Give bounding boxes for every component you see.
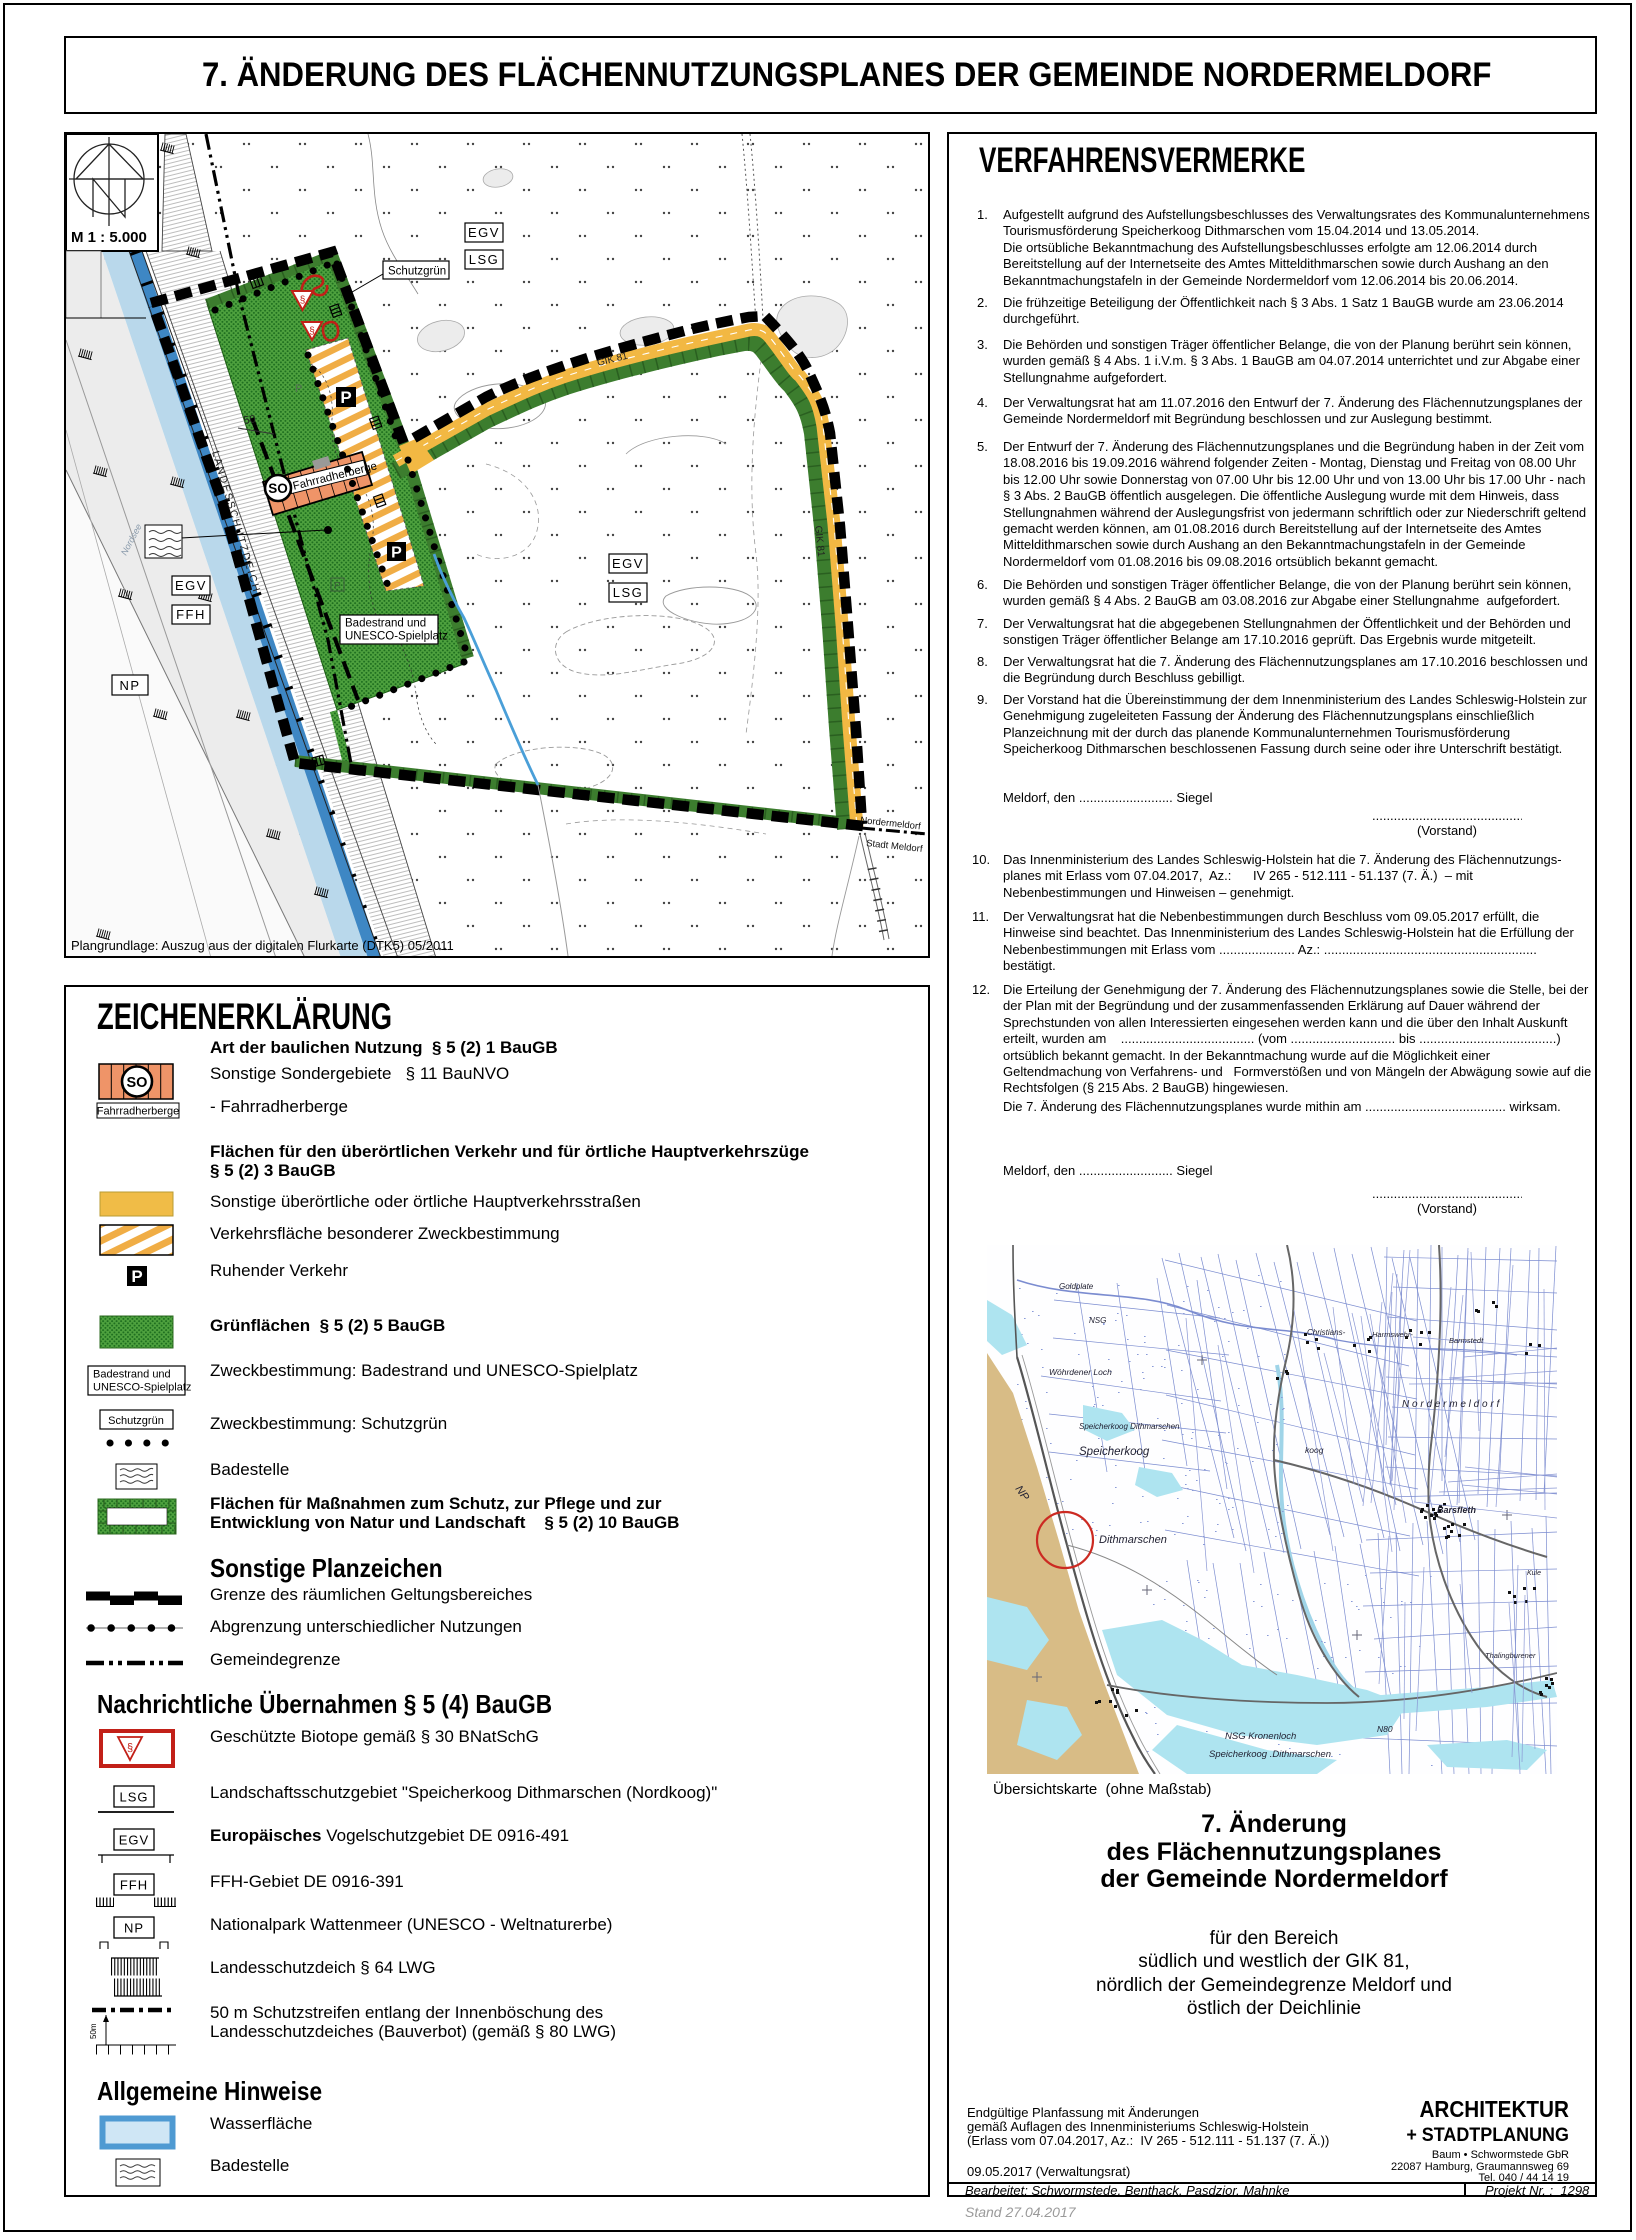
svg-text:Schutzgrün: Schutzgrün bbox=[108, 1415, 164, 1427]
svg-text:Christians-: Christians- bbox=[1307, 1328, 1346, 1337]
svg-text:NSG: NSG bbox=[1089, 1316, 1106, 1325]
svg-text:P: P bbox=[391, 545, 402, 562]
svg-text:P: P bbox=[131, 1267, 142, 1286]
svg-text:§: § bbox=[127, 1742, 133, 1754]
svg-text:Wöhrdener Loch: Wöhrdener Loch bbox=[1049, 1367, 1112, 1377]
svg-text:Schutzgrün: Schutzgrün bbox=[388, 266, 446, 278]
svg-text:FFH: FFH bbox=[120, 1878, 148, 1893]
svg-text:Plangrundlage: Auszug aus der: Plangrundlage: Auszug aus der digitalen … bbox=[71, 938, 454, 953]
svg-text:LSG: LSG bbox=[469, 252, 500, 267]
svg-text:Dithmarschen: Dithmarschen bbox=[1099, 1534, 1167, 1546]
svg-text:Barsfleth: Barsfleth bbox=[1437, 1505, 1477, 1515]
svg-text:50m: 50m bbox=[89, 2023, 98, 2039]
svg-text:Speicherkoog Dithmarschen: Speicherkoog Dithmarschen bbox=[1079, 1422, 1180, 1431]
svg-text:P: P bbox=[340, 388, 351, 407]
svg-text:SO: SO bbox=[127, 1075, 148, 1091]
svg-text:SO: SO bbox=[268, 481, 288, 496]
svg-text:Kule: Kule bbox=[1527, 1570, 1541, 1577]
svg-text:Barmstedt: Barmstedt bbox=[1449, 1336, 1484, 1345]
svg-text:§: § bbox=[300, 295, 306, 306]
svg-text:NP: NP bbox=[119, 678, 140, 693]
svg-text:N80: N80 bbox=[1377, 1724, 1393, 1734]
svg-text:P: P bbox=[334, 581, 341, 592]
svg-text:50: 50 bbox=[243, 413, 257, 427]
svg-text:Badestrand und: Badestrand und bbox=[345, 618, 426, 630]
svg-text:P: P bbox=[295, 383, 302, 395]
svg-text:UNESCO-Spielplatz: UNESCO-Spielplatz bbox=[345, 631, 448, 643]
svg-text:Harmswehr-: Harmswehr- bbox=[1372, 1330, 1413, 1339]
svg-text:koog: koog bbox=[1305, 1445, 1324, 1455]
svg-text:EGV: EGV bbox=[119, 1833, 149, 1848]
svg-text:Speicherkoog: Speicherkoog bbox=[1079, 1446, 1150, 1458]
svg-text:§: § bbox=[309, 326, 315, 337]
svg-text:Thalingburener: Thalingburener bbox=[1485, 1651, 1536, 1660]
svg-text:Goldplate: Goldplate bbox=[1059, 1282, 1094, 1291]
svg-text:LSG: LSG bbox=[119, 1790, 148, 1805]
svg-text:UNESCO-Spielplatz: UNESCO-Spielplatz bbox=[93, 1382, 191, 1394]
svg-text:FFH: FFH bbox=[176, 607, 206, 622]
svg-text:LSG: LSG bbox=[613, 585, 644, 600]
svg-text:Fahrradherberge: Fahrradherberge bbox=[97, 1106, 180, 1118]
svg-text:EGV: EGV bbox=[175, 578, 207, 593]
svg-text:NSG Kronenloch: NSG Kronenloch bbox=[1225, 1731, 1296, 1742]
svg-text:EGV: EGV bbox=[612, 556, 644, 571]
svg-text:N o r d e r m e l d o r f: N o r d e r m e l d o r f bbox=[1402, 1399, 1500, 1410]
svg-text:Badestrand und: Badestrand und bbox=[93, 1369, 171, 1381]
svg-text:EGV: EGV bbox=[468, 225, 500, 240]
svg-text:Speicherkoog .Dithmarschen: Speicherkoog .Dithmarschen bbox=[1209, 1749, 1331, 1760]
svg-text:NP: NP bbox=[124, 1921, 144, 1936]
svg-text:M 1 : 5.000: M 1 : 5.000 bbox=[71, 229, 147, 246]
